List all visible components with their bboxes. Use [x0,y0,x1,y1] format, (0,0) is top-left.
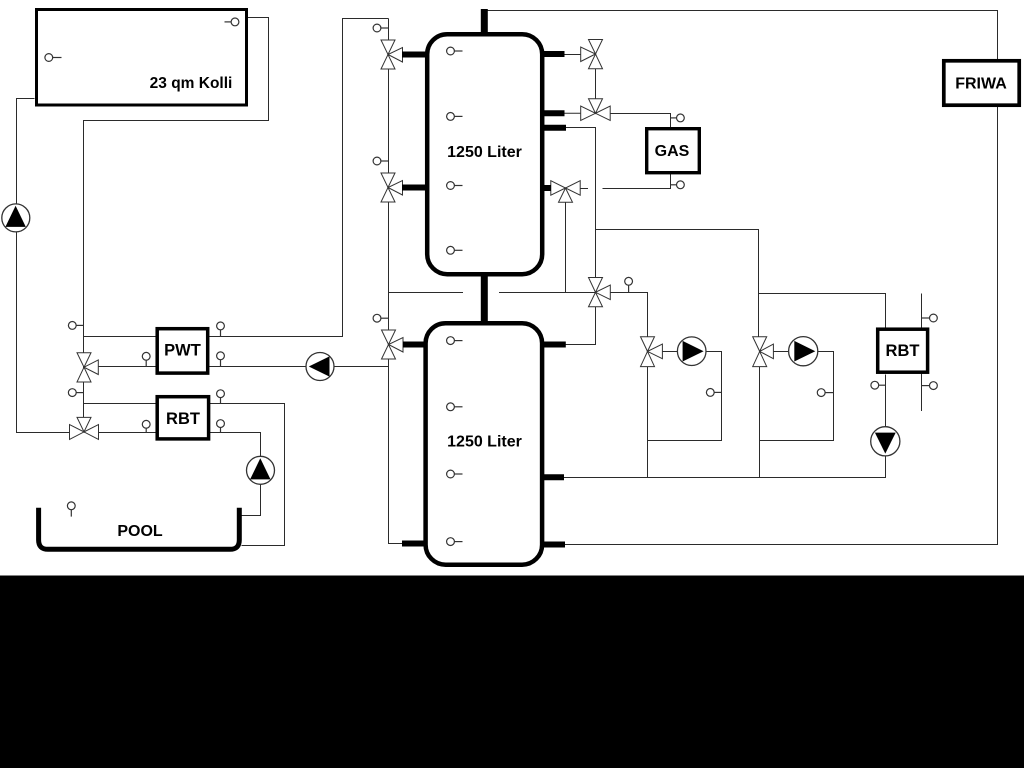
svg-text:FRIWA: FRIWA [955,76,1007,93]
svg-text:RBT: RBT [166,410,200,428]
svg-text:PWT: PWT [164,342,201,360]
svg-text:1250 Liter: 1250 Liter [447,144,522,161]
svg-text:1250 Liter: 1250 Liter [447,434,522,451]
svg-text:POOL: POOL [117,523,163,540]
svg-text:23 qm Kolli: 23 qm Kolli [150,75,233,92]
svg-text:GAS: GAS [655,143,690,160]
svg-text:RBT: RBT [886,342,920,360]
